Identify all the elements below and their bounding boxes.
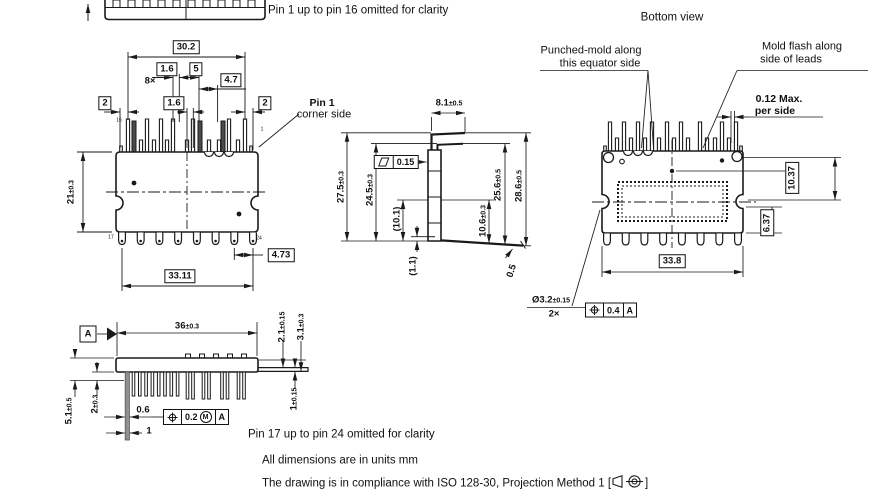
- dim-5-1: 5.1±0.5: [64, 398, 74, 425]
- note-units: All dimensions are in units mm: [262, 455, 418, 467]
- position-tolerance-frame-lead: 0.2M A: [163, 409, 229, 425]
- dim-1-1-ref: (1.1): [408, 256, 418, 276]
- callout-mold-flash-1: Mold flash along: [762, 42, 842, 53]
- count-8x: 8×: [145, 76, 156, 86]
- callout-pin1-corner-2: corner side: [297, 110, 351, 121]
- dim-10-1-ref: (10.1): [392, 207, 402, 232]
- dim-33-11: 33.11: [164, 269, 195, 283]
- dim-2-1: 2.1±0.15: [277, 312, 287, 343]
- dim-25-6: 25.6±0.5: [493, 169, 503, 201]
- dim-4-7: 4.7: [220, 73, 241, 87]
- callout-mold-flash-2: side of leads: [760, 55, 822, 66]
- dim-1-tol: 1±0.15: [289, 388, 299, 411]
- pin24-number: 24: [256, 237, 262, 242]
- dim-36: 36±0.3: [175, 321, 199, 331]
- bottom-view-linework: [527, 71, 868, 308]
- dim-27-5: 27.5±0.3: [336, 171, 346, 203]
- callout-punched-mold-1: Punched-mold along: [541, 46, 642, 57]
- partial-top-view: [88, 0, 265, 21]
- dim-1: 1: [146, 426, 151, 436]
- dim-6-37: 6.37: [760, 210, 774, 237]
- note-pins17-24: Pin 17 up to pin 24 omitted for clarity: [248, 429, 435, 441]
- dim-2: 2±0.3: [90, 395, 100, 414]
- note-compliance: The drawing is in compliance with ISO 12…: [262, 474, 648, 490]
- pin1-number: 1: [261, 128, 264, 133]
- pin17-number: 17: [108, 236, 114, 241]
- note-pins1-16: Pin 1 up to pin 16 omitted for clarity: [268, 5, 448, 17]
- position-icon: [589, 305, 600, 316]
- dim-0-6: 0.6: [136, 405, 149, 415]
- position-icon: [167, 412, 178, 423]
- position-tolerance-frame-hole: 0.4 A: [585, 303, 637, 318]
- flatness-frame: 0.15: [374, 155, 419, 169]
- pin16-number: 16: [116, 119, 122, 124]
- dim-33-8: 33.8: [659, 254, 686, 268]
- dim-28-6: 28.6±0.5: [514, 170, 524, 202]
- package-outline-drawing: Pin 1 up to pin 16 omitted for clarity 3…: [0, 0, 880, 495]
- dim-24-5: 24.5±0.3: [365, 174, 375, 206]
- dim-hole-count: 2×: [549, 309, 560, 319]
- dim-10-6: 10.6±0.3: [478, 205, 488, 237]
- dim-1-6-top: 1.6: [156, 62, 177, 76]
- dim-2-right: 2: [258, 96, 271, 110]
- dim-hole-dia: Ø3.2±0.15: [532, 295, 570, 305]
- dim-0-12-max: 0.12 Max.: [756, 94, 803, 105]
- dim-10-37: 10.37: [785, 162, 799, 194]
- bottom-view-title: Bottom view: [641, 12, 704, 24]
- mmc-modifier-icon: M: [200, 411, 212, 423]
- dim-21: 21±0.3: [66, 180, 76, 204]
- datum-a-triangle: [107, 328, 117, 341]
- dim-8-1: 8.1±0.5: [436, 98, 463, 108]
- front-view: [77, 52, 299, 291]
- callout-pin1-corner-1: Pin 1: [309, 98, 334, 109]
- drawing-linework: [0, 0, 880, 495]
- dim-0-12-per-side: per side: [755, 106, 795, 117]
- dim-3-1: 3.1±0.3: [296, 314, 306, 341]
- dim-1-6-mid: 1.6: [163, 96, 184, 110]
- dim-30-2: 30.2: [173, 40, 200, 54]
- pin17-lead: [125, 372, 129, 440]
- datum-a-box: A: [80, 326, 97, 343]
- first-angle-projection-icon: [612, 474, 644, 489]
- callout-punched-mold-2: this equator side: [560, 59, 641, 70]
- dim-4-73: 4.73: [268, 248, 295, 262]
- flatness-parallelogram-icon: [378, 157, 390, 167]
- dim-5: 5: [189, 62, 202, 76]
- dim-2-left: 2: [98, 96, 111, 110]
